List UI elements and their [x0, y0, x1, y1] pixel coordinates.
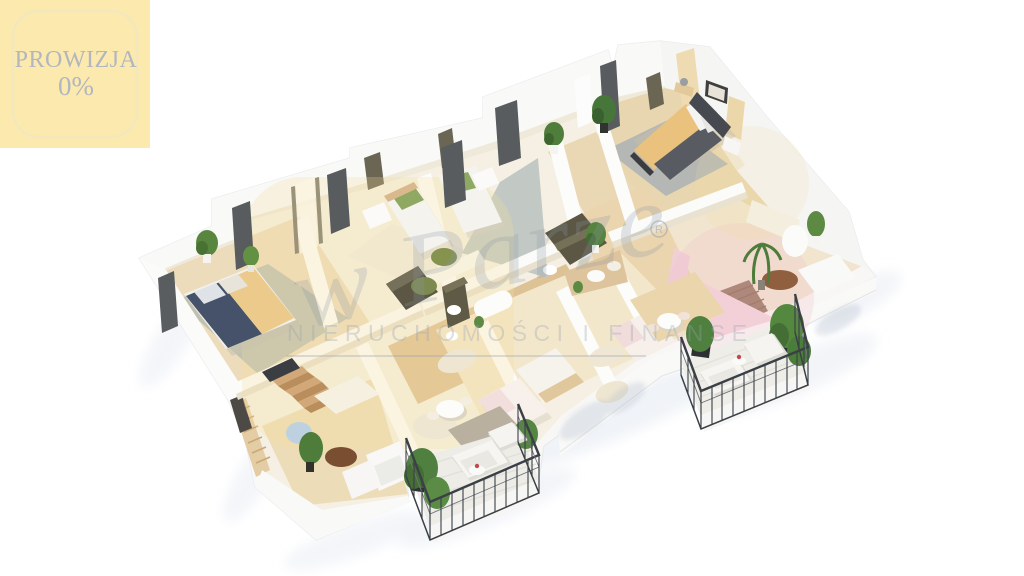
svg-text:PROWIZJA: PROWIZJA: [15, 47, 138, 73]
svg-text:0%: 0%: [58, 71, 94, 101]
svg-text:NIERUCHOMOŚCI I FINANSE: NIERUCHOMOŚCI I FINANSE: [287, 319, 753, 346]
svg-text:R: R: [655, 224, 663, 236]
